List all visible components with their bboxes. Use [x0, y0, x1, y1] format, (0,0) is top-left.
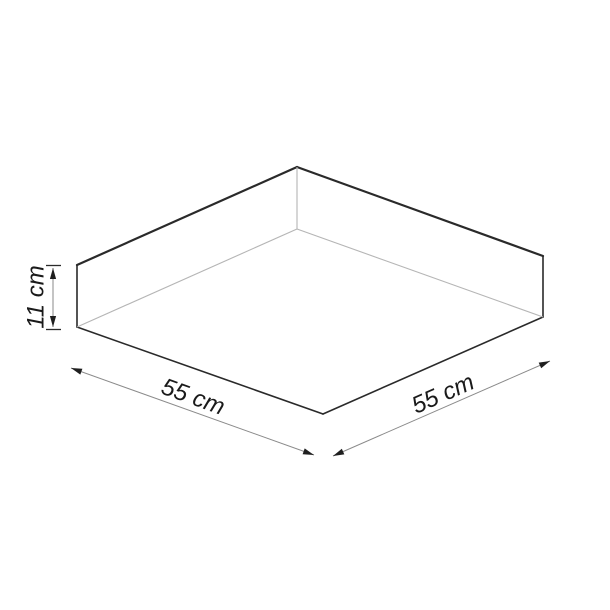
left-width-dimension-line — [71, 368, 314, 455]
left-width-dimension: 55 cm — [71, 368, 314, 455]
right-width-dimension-label: 55 cm — [408, 369, 479, 420]
lamp-panel-fold-lines — [77, 167, 543, 327]
box-top-left-edge — [77, 167, 297, 265]
dimension-diagram-canvas: 11 cm 55 cm 55 cm — [0, 0, 610, 610]
right-width-dimension: 55 cm — [333, 361, 550, 456]
lamp-box-outline — [77, 167, 543, 414]
left-width-dimension-label: 55 cm — [158, 373, 229, 420]
height-dimension-label: 11 cm — [23, 265, 50, 329]
panel-fold-left-line — [77, 229, 297, 327]
height-dimension: 11 cm — [23, 265, 62, 329]
lamp-dimension-diagram: 11 cm 55 cm 55 cm — [0, 0, 610, 610]
